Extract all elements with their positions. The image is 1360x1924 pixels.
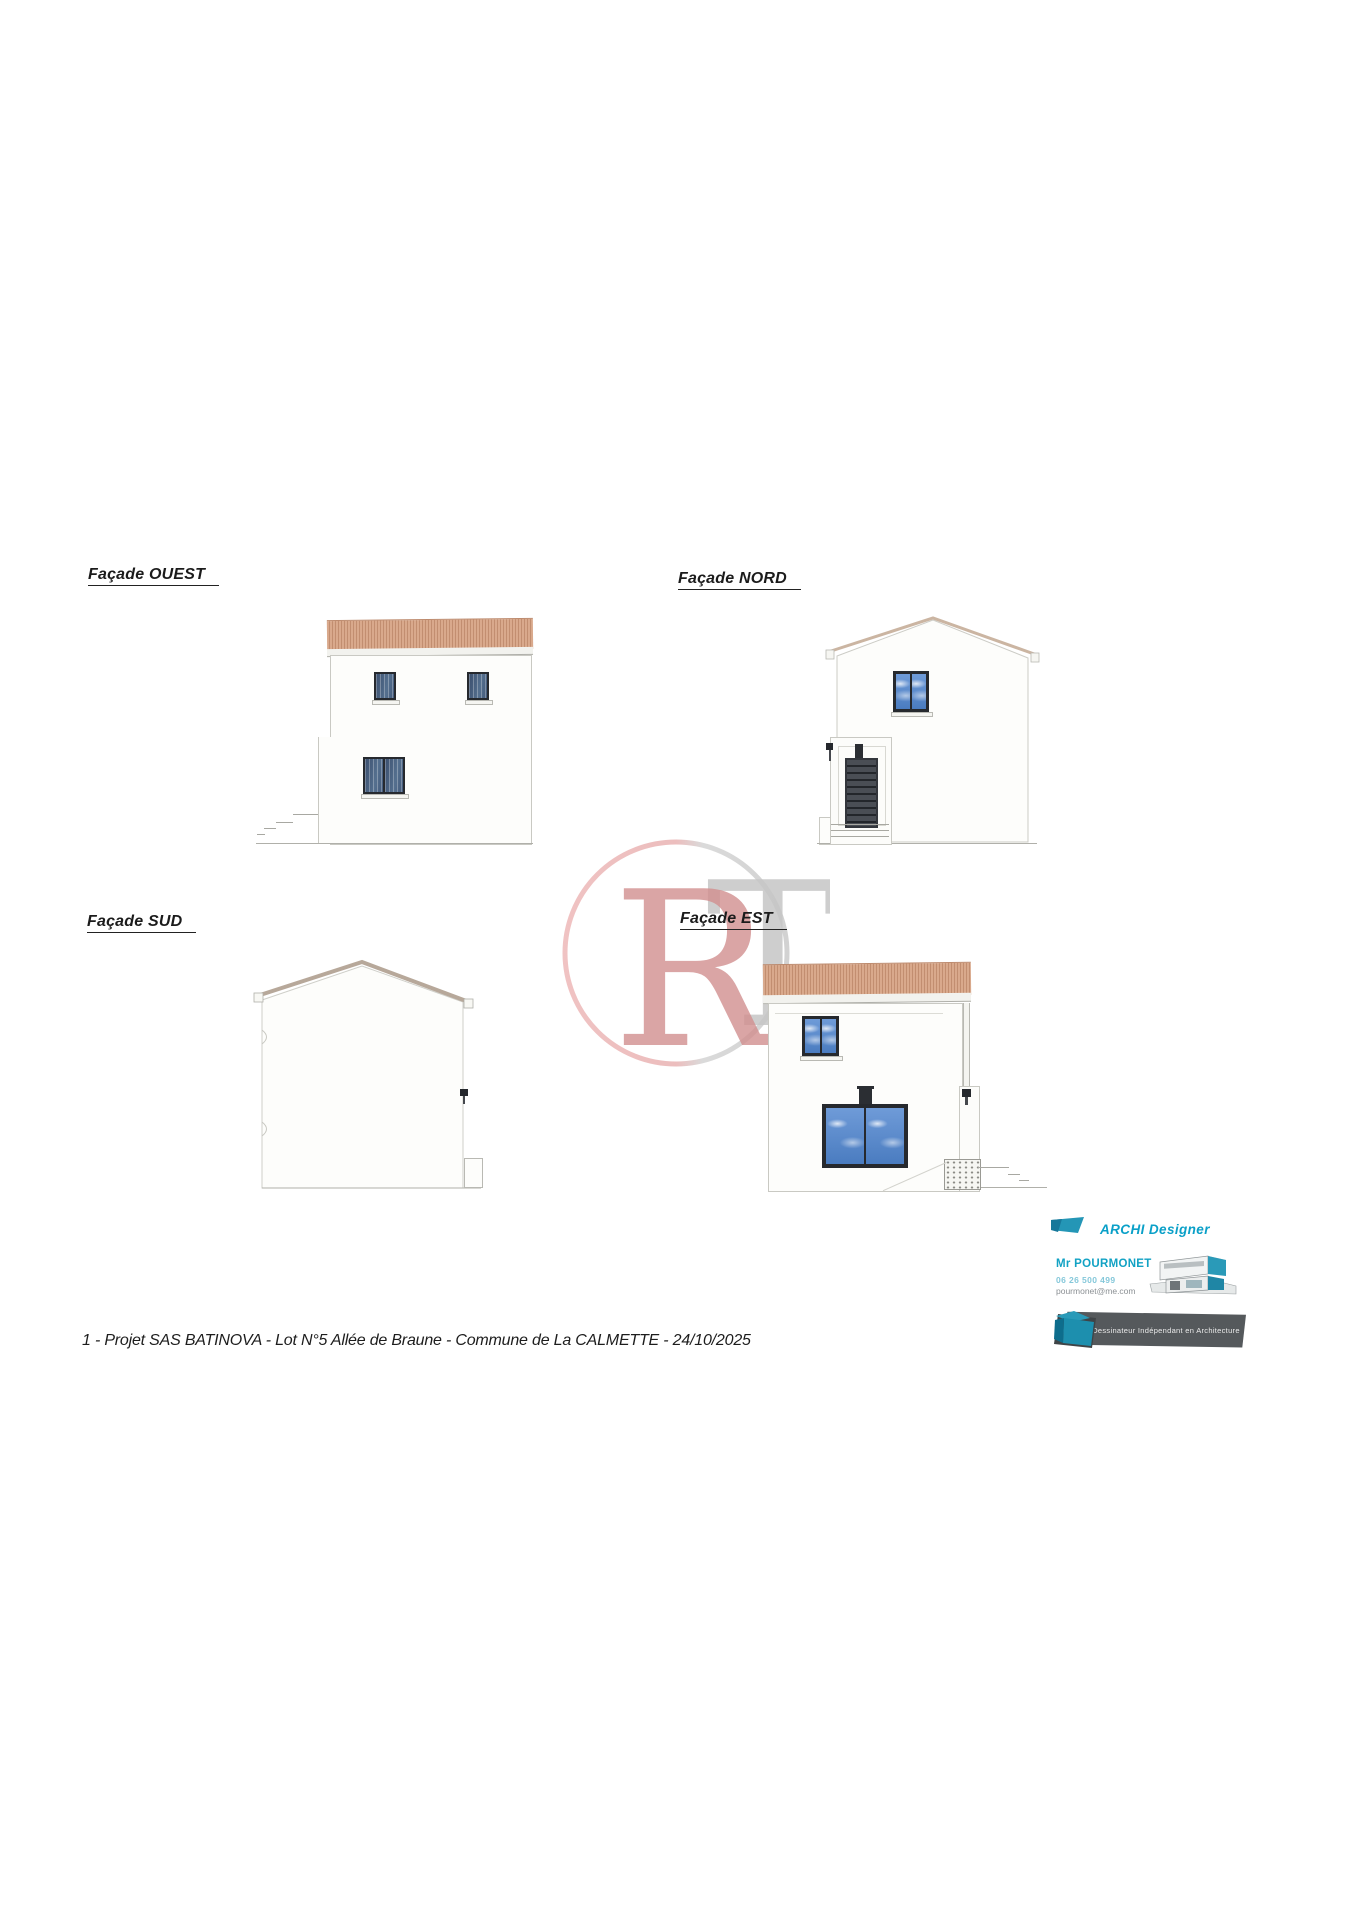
ouest-ground-line <box>256 843 533 844</box>
est-lamp-icon <box>962 1089 971 1097</box>
contact-name: Mr POURMONET <box>1056 1258 1152 1270</box>
nord-step <box>831 824 889 825</box>
window-glass <box>385 759 403 792</box>
window-sill <box>800 1056 843 1061</box>
window-glass <box>365 759 383 792</box>
ouest-window-lower <box>363 757 405 794</box>
designer-brand: ARCHI Designer <box>1100 1222 1210 1237</box>
nord-step <box>831 830 889 831</box>
window-glass <box>376 674 394 698</box>
nord-door-vent <box>855 744 863 758</box>
label-facade-ouest: Façade OUEST <box>88 566 219 586</box>
plan-sheet: T R Façade OUEST Façade NORD Façade SUD … <box>0 0 1360 1924</box>
designer-cube-icon <box>1050 1306 1104 1352</box>
window-sill <box>891 712 933 717</box>
window-sill <box>372 700 400 705</box>
est-eave-shadow <box>775 1013 943 1014</box>
window-glass <box>826 1108 864 1164</box>
nord-lamp-post <box>829 750 831 761</box>
ouest-window-upper-right <box>467 672 489 700</box>
window-glass <box>896 674 910 709</box>
est-step <box>1019 1180 1029 1181</box>
est-step <box>978 1167 1009 1168</box>
sud-gable-shape <box>245 950 495 1195</box>
ouest-wall <box>330 655 532 845</box>
window-sill <box>465 700 493 705</box>
est-gabion-box <box>944 1159 981 1190</box>
nord-entry-door <box>845 758 878 828</box>
est-step <box>1008 1174 1020 1175</box>
nord-window <box>893 671 929 712</box>
est-window-vent <box>859 1088 872 1105</box>
window-glass <box>469 674 487 698</box>
ouest-step <box>276 822 293 823</box>
designer-house-illustration <box>1146 1240 1242 1302</box>
ouest-step <box>293 814 318 815</box>
est-downpipe <box>963 1003 970 1086</box>
contact-email: pourmonet@me.com <box>1056 1286 1136 1296</box>
ouest-step <box>264 828 276 829</box>
nord-step <box>831 836 889 837</box>
window-glass <box>822 1019 837 1053</box>
est-roof <box>763 962 971 998</box>
label-facade-est: Façade EST <box>680 910 787 930</box>
est-window-upper <box>802 1016 839 1056</box>
est-lamp-post <box>965 1097 968 1105</box>
sud-lamp-post <box>463 1096 465 1104</box>
label-facade-nord: Façade NORD <box>678 570 801 590</box>
sud-corner-box <box>464 1158 483 1188</box>
sud-lamp-icon <box>460 1089 468 1096</box>
label-facade-sud: Façade SUD <box>87 913 196 933</box>
est-window-large <box>822 1104 908 1168</box>
ouest-step <box>257 834 265 835</box>
window-sill <box>361 794 409 799</box>
ouest-window-upper-left <box>374 672 396 700</box>
watermark-letter-r: R <box>612 845 780 1085</box>
est-window-vent-cap <box>857 1086 874 1089</box>
ouest-roof <box>327 618 533 651</box>
window-glass <box>912 674 926 709</box>
window-glass <box>805 1019 820 1053</box>
sheet-title: 1 - Projet SAS BATINOVA - Lot N°5 Allée … <box>82 1332 751 1350</box>
nord-lamp-icon <box>826 743 833 750</box>
ouest-stair-wall <box>318 737 331 844</box>
window-glass <box>866 1108 904 1164</box>
contact-phone: 06 26 500 499 <box>1056 1275 1116 1285</box>
designer-flag-icon <box>1050 1217 1086 1234</box>
est-ground-line <box>977 1187 1047 1188</box>
